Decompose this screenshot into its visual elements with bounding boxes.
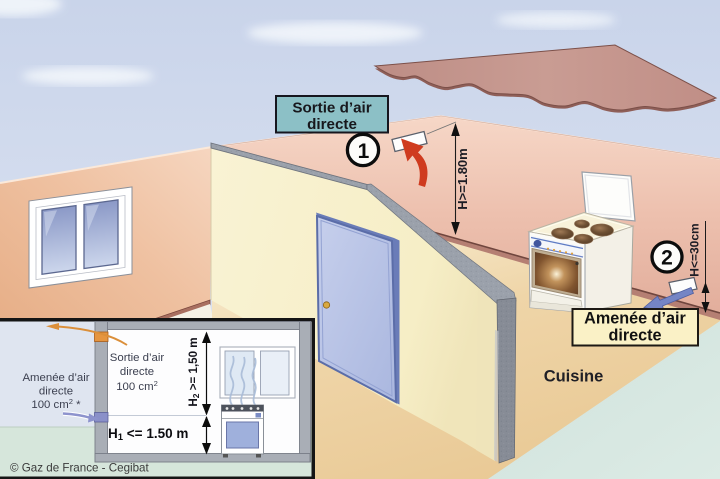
svg-text:directe: directe — [307, 116, 357, 133]
svg-text:directe: directe — [608, 327, 661, 345]
svg-text:2: 2 — [661, 247, 673, 270]
svg-text:© Gaz de France - Cegibat: © Gaz de France - Cegibat — [10, 462, 149, 475]
svg-text:Cuisine: Cuisine — [544, 368, 604, 386]
svg-text:1: 1 — [358, 140, 370, 163]
svg-text:directe: directe — [120, 366, 154, 378]
svg-text:Amenée d’air: Amenée d’air — [584, 310, 686, 328]
svg-text:Amenée d’air: Amenée d’air — [22, 372, 89, 384]
svg-text:100 cm2: 100 cm2 — [116, 379, 158, 393]
svg-text:Sortie d’air: Sortie d’air — [110, 352, 165, 364]
svg-text:H<=30cm: H<=30cm — [688, 223, 702, 276]
svg-text:100 cm2 *: 100 cm2 * — [31, 397, 81, 411]
svg-text:Sortie d’air: Sortie d’air — [292, 100, 371, 117]
svg-text:directe: directe — [39, 386, 73, 398]
svg-text:H>=1.80m: H>=1.80m — [455, 148, 470, 209]
